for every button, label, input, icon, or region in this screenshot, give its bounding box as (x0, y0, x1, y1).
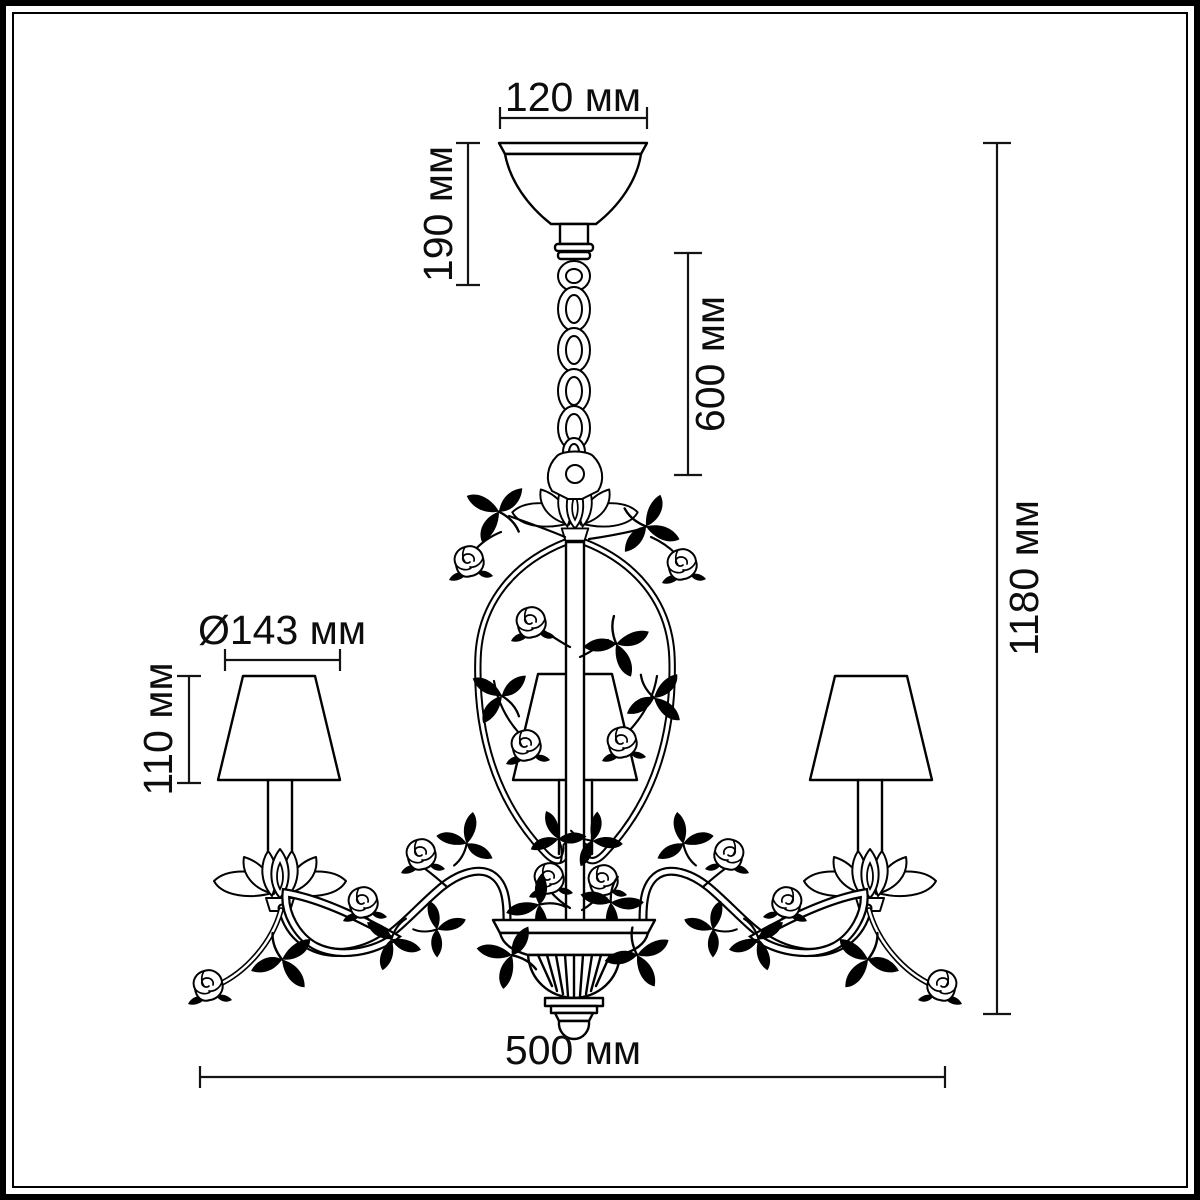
chandelier-diagram: 120 мм 190 мм 600 мм 1180 мм Ø143 мм 110… (0, 0, 1200, 1200)
suspension-chain (558, 261, 590, 466)
center-bowl (476, 919, 674, 1039)
dimension-label-total-height: 1180 мм (1001, 500, 1047, 656)
diagram-page: 120 мм 190 мм 600 мм 1180 мм Ø143 мм 110… (0, 0, 1200, 1200)
dimension-shade-height: 110 мм (135, 662, 201, 795)
left-shade (218, 676, 340, 780)
chain-link (558, 328, 590, 372)
dimension-chain-length: 600 мм (674, 253, 733, 475)
dimension-shade-diameter: Ø143 мм (198, 607, 366, 671)
right-fixture (643, 676, 962, 1005)
dimension-label-total-width: 500 мм (505, 1027, 641, 1073)
rose-ornament (511, 607, 555, 642)
dimension-label-canopy-width: 120 мм (505, 74, 641, 120)
dimension-label-shade-height: 110 мм (135, 662, 181, 795)
dimension-label-shade-diameter: Ø143 мм (198, 607, 366, 653)
left-candle (268, 780, 292, 851)
dimension-total-width: 500 мм (200, 1027, 945, 1088)
dimension-canopy-height: 190 мм (415, 143, 480, 285)
chain-link (558, 287, 590, 331)
dimension-label-canopy-height: 190 мм (415, 146, 461, 282)
rose-ornament (449, 546, 493, 581)
rose-ornament (401, 839, 445, 874)
left-fixture (188, 676, 507, 1005)
dimension-total-height: 1180 мм (983, 143, 1047, 1014)
dimension-canopy-width: 120 мм (500, 74, 647, 129)
leaf-ornament (582, 607, 655, 677)
leaf-ornament (627, 670, 684, 721)
rose-ornament (188, 970, 232, 1005)
leaf-ornament (434, 812, 495, 876)
rose-ornament (662, 549, 706, 584)
dimension-label-chain-length: 600 мм (687, 296, 733, 432)
chain-clamp (548, 452, 602, 500)
ceiling-canopy (499, 143, 647, 259)
rose-ornament (343, 887, 387, 922)
